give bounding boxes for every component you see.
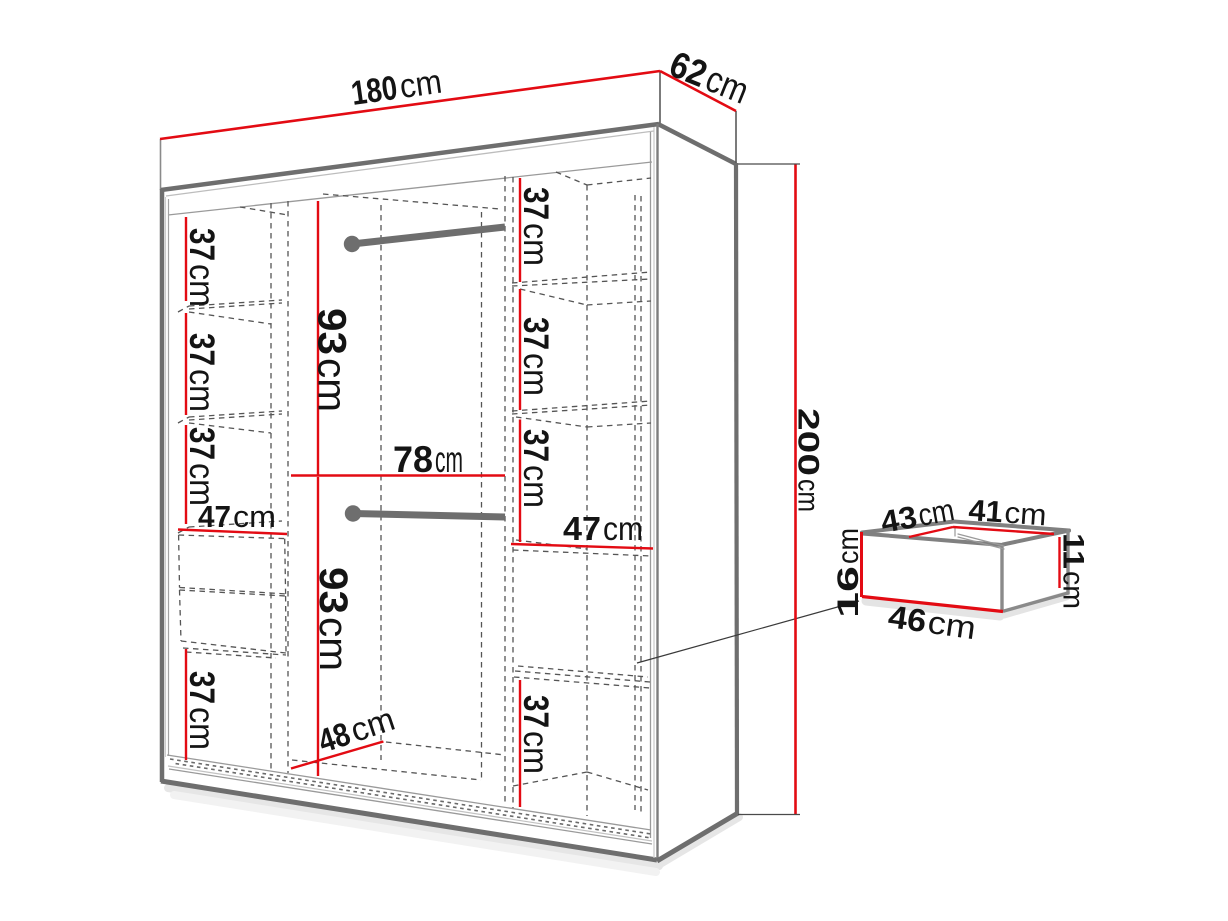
svg-text:37cm: 37cm <box>182 427 221 506</box>
svg-text:11cm: 11cm <box>1057 533 1090 609</box>
svg-text:93cm: 93cm <box>311 567 355 671</box>
svg-text:93cm: 93cm <box>310 308 354 412</box>
svg-text:47cm: 47cm <box>563 510 643 547</box>
svg-text:37cm: 37cm <box>516 429 555 508</box>
svg-text:200cm: 200cm <box>792 408 825 512</box>
svg-text:47cm: 47cm <box>198 499 276 534</box>
svg-text:37cm: 37cm <box>182 671 221 750</box>
svg-text:37cm: 37cm <box>516 187 555 266</box>
svg-text:37cm: 37cm <box>182 228 221 307</box>
svg-text:37cm: 37cm <box>516 317 555 396</box>
svg-text:78cm: 78cm <box>393 439 463 480</box>
svg-text:16cm: 16cm <box>832 528 865 618</box>
svg-text:41cm: 41cm <box>968 494 1048 532</box>
svg-text:37cm: 37cm <box>182 333 221 412</box>
svg-text:37cm: 37cm <box>516 695 555 774</box>
